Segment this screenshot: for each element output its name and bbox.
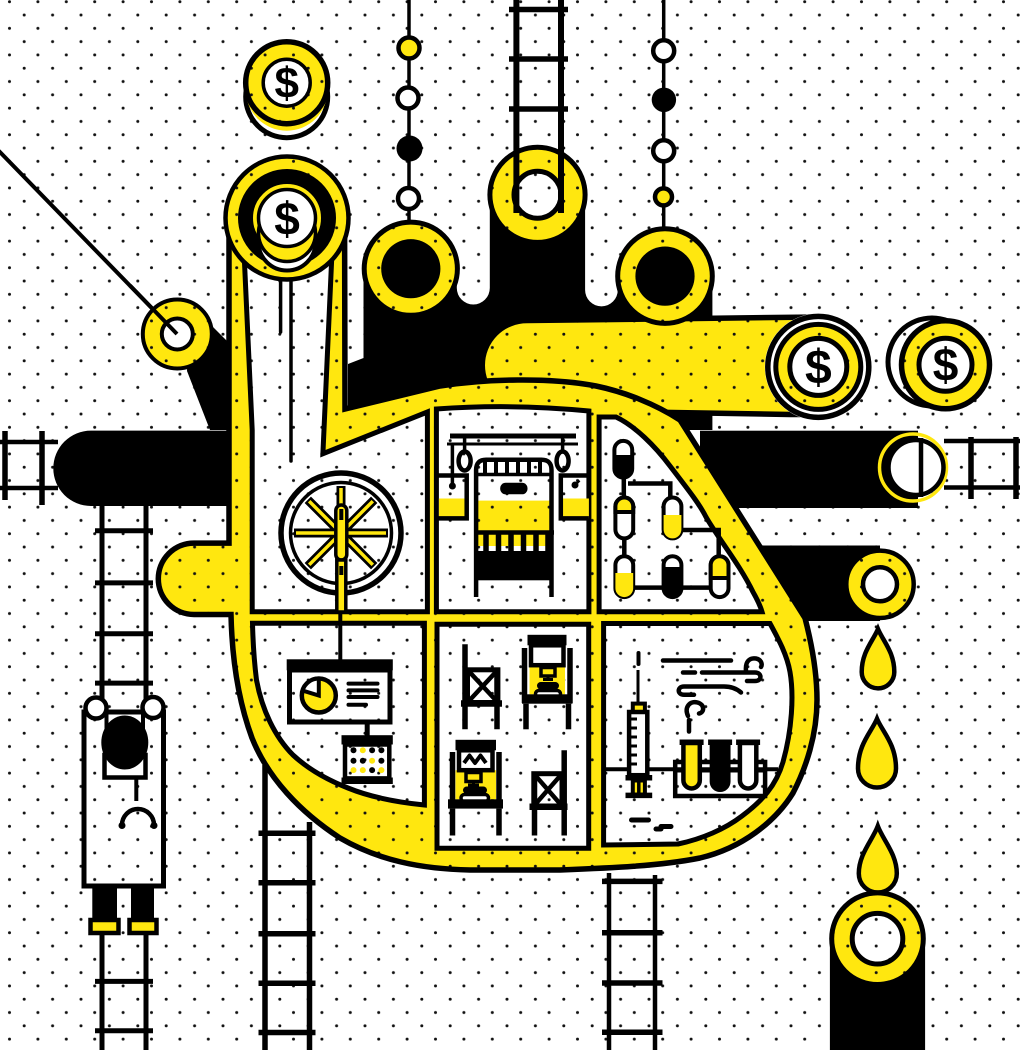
svg-text:$: $ [274,59,298,108]
svg-text:$: $ [274,193,300,245]
svg-text:$: $ [933,339,959,391]
svg-text:$: $ [805,342,832,395]
